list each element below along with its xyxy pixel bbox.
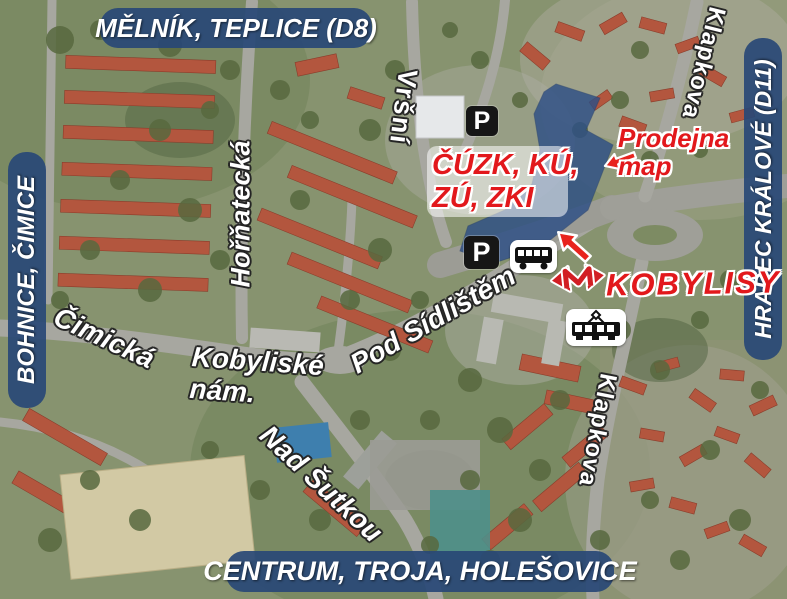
banner-direction-east: HRADEC KRÁLOVÉ (D11) [744,38,782,360]
office-label-line1: ČÚZK, KÚ, [432,149,568,182]
street-label-hornatecka: Hořňatecká [226,140,257,287]
street-label-kobyliske-nam: Kobyliské nám. [189,341,325,414]
orientation-map: MĚLNÍK, TEPLICE (D8) BOHNICE, ČIMICE HRA… [0,0,787,599]
metro-station-label: KOBYLISY [606,264,781,303]
parking-icon-north: P [466,106,498,136]
office-label-box: ČÚZK, KÚ, ZÚ, ZKI [427,146,568,217]
map-shop-label: Prodejna map [618,124,729,180]
banner-direction-south: CENTRUM, TROJA, HOLEŠOVICE [226,551,614,592]
tram-glyph [566,309,626,346]
bus-stop-icon [510,240,557,273]
bus-glyph [510,240,557,273]
banner-direction-west: BOHNICE, ČIMICE [8,152,46,408]
parking-icon-south: P [464,236,499,269]
metro-logo-icon [548,258,607,300]
map-shop-label-line2: map [618,152,729,180]
office-label-line2: ZÚ, ZKI [432,182,568,215]
map-shop-label-line1: Prodejna [618,124,729,152]
tram-stop-icon [566,309,626,346]
banner-direction-north: MĚLNÍK, TEPLICE (D8) [100,8,372,48]
